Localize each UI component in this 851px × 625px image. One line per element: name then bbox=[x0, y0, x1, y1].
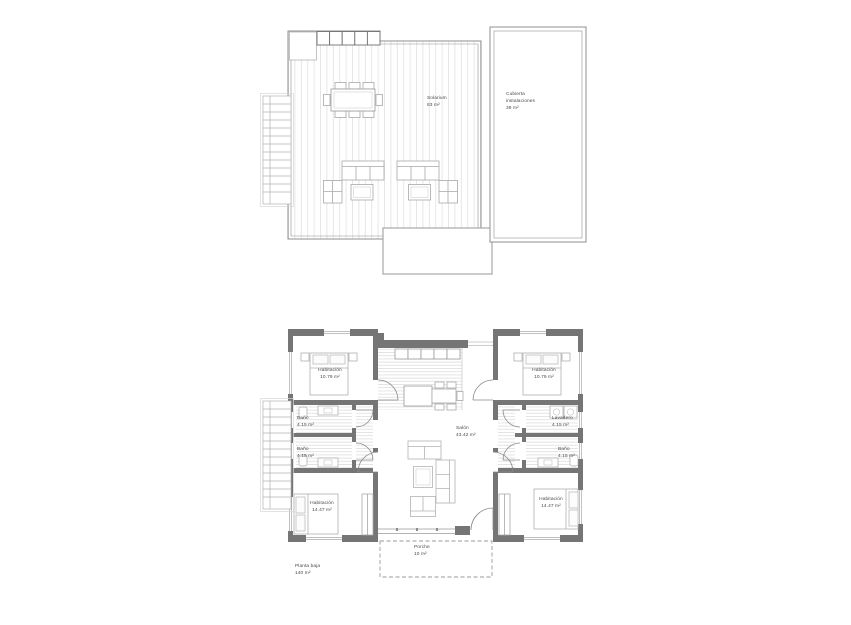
upper-floor-plan: Solarium 83 m² Cubierta instalaciones 39… bbox=[261, 27, 587, 274]
label-lavadero: Lavadero bbox=[552, 415, 573, 421]
solarium-deck bbox=[288, 31, 481, 239]
coffee-table bbox=[414, 467, 433, 488]
sofa bbox=[342, 161, 384, 180]
kitchen-cabinets bbox=[395, 349, 460, 359]
dining-table bbox=[331, 89, 375, 111]
bed-bottom-right bbox=[534, 489, 578, 529]
label-porche-area: 10 m² bbox=[414, 551, 427, 557]
label-hab-tl: Habitación bbox=[318, 367, 342, 373]
salon-window-band bbox=[378, 528, 455, 534]
label-hab-br: Habitación bbox=[539, 496, 563, 502]
kitchen-table bbox=[432, 389, 456, 403]
label-solarium-area: 83 m² bbox=[427, 102, 440, 108]
deck-planter-row bbox=[317, 32, 380, 46]
label-hab-bl-area: 14.47 m² bbox=[312, 507, 332, 513]
sofa bbox=[397, 161, 439, 180]
salon-lounge bbox=[408, 441, 455, 517]
sofa-three-seat bbox=[436, 460, 455, 503]
deck-outline bbox=[288, 31, 481, 239]
vestibule-left-floor bbox=[356, 405, 373, 468]
label-lavadero-area: 4.15 m² bbox=[552, 422, 569, 428]
door-arc bbox=[471, 508, 493, 530]
label-planta-baja-area: 140 m² bbox=[295, 570, 311, 576]
staircase-lower bbox=[261, 399, 294, 512]
label-bano-l1: Baño bbox=[297, 415, 309, 421]
lower-floor-plan: Habitación 10.79 m² Habitación 10.79 m² … bbox=[261, 329, 584, 577]
bed-top-left bbox=[301, 353, 357, 395]
floorplan-page: Solarium 83 m² Cubierta instalaciones 39… bbox=[0, 0, 851, 625]
label-solarium: Solarium bbox=[427, 95, 447, 101]
sink-counter bbox=[318, 458, 338, 467]
label-hab-tr: Habitación bbox=[532, 367, 556, 373]
label-salon: Salón bbox=[456, 425, 469, 431]
label-bano-l2: Baño bbox=[297, 446, 309, 452]
label-bano-l2-area: 4.15 m² bbox=[297, 453, 314, 459]
floor-plan-drawing: Solarium 83 m² Cubierta instalaciones 39… bbox=[0, 0, 851, 625]
label-hab-tr-area: 10.79 m² bbox=[534, 374, 554, 380]
door-arc bbox=[473, 380, 493, 400]
deck-corner-box bbox=[290, 32, 317, 60]
label-cubierta-2: instalaciones bbox=[506, 98, 536, 104]
sink-counter bbox=[538, 458, 558, 467]
bed-bottom-left bbox=[294, 494, 338, 534]
label-planta-baja: Planta baja bbox=[295, 563, 320, 569]
label-bano-r-area: 4.15 m² bbox=[558, 453, 575, 459]
sink-counter bbox=[318, 406, 338, 415]
label-hab-br-area: 14.47 m² bbox=[541, 503, 561, 509]
label-bano-r: Baño bbox=[558, 446, 570, 452]
porch-outline bbox=[380, 541, 492, 577]
label-hab-bl: Habitación bbox=[310, 500, 334, 506]
vestibule-right-floor bbox=[498, 405, 515, 468]
label-porche: Porche bbox=[414, 544, 430, 550]
bed-top-right bbox=[514, 353, 570, 395]
label-cubierta-area: 39 m² bbox=[506, 105, 519, 111]
kitchen-island bbox=[404, 386, 432, 406]
staircase-upper bbox=[261, 94, 294, 207]
cubierta-room bbox=[490, 27, 586, 242]
label-hab-tl-area: 10.79 m² bbox=[320, 374, 340, 380]
label-bano-l1-area: 4.15 m² bbox=[297, 422, 314, 428]
label-salon-area: 43.42 m² bbox=[456, 432, 476, 438]
label-cubierta-1: Cubierta bbox=[506, 91, 525, 97]
kitchen-window bbox=[468, 342, 493, 346]
porch-roof bbox=[383, 228, 492, 274]
